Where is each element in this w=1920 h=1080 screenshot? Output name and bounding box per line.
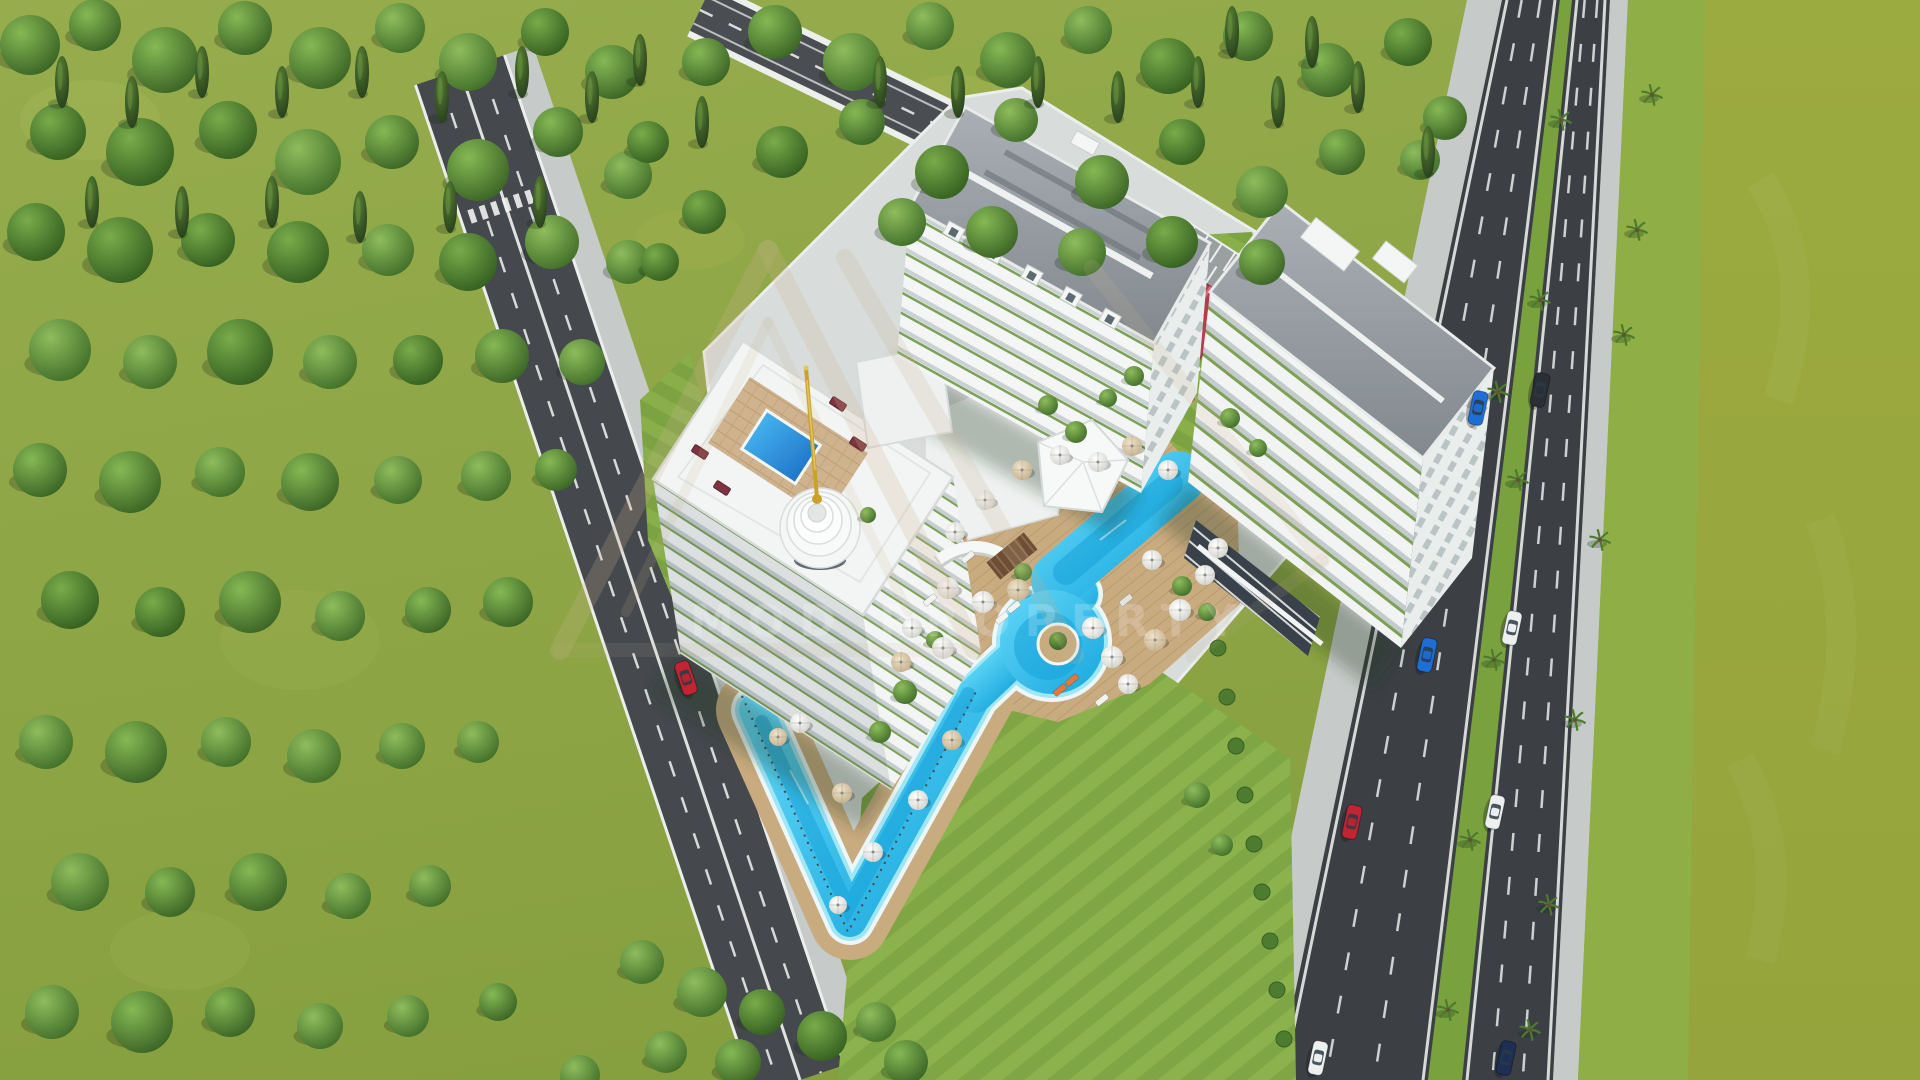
tree-canopy (1065, 421, 1087, 443)
tree-canopy (19, 715, 73, 769)
tree-canopy (111, 991, 173, 1053)
tree-canopy (315, 591, 365, 641)
pine-highlight (588, 77, 593, 105)
umbrella-pole (1059, 454, 1062, 457)
tree-canopy (387, 995, 429, 1037)
pine-highlight (198, 52, 203, 80)
palm-trunk (1559, 118, 1563, 122)
scene-svg (0, 0, 1920, 1080)
tree-canopy (362, 224, 414, 276)
pine-highlight (1308, 22, 1313, 50)
tree-canopy (219, 571, 281, 633)
hedge-bush (1246, 836, 1262, 852)
umbrella-pole (841, 792, 844, 795)
tree-canopy (87, 217, 153, 283)
tree-canopy (1239, 239, 1285, 285)
tree-canopy (69, 0, 121, 51)
hedge-bush (1254, 884, 1270, 900)
tree-canopy (374, 456, 422, 504)
tree-canopy (461, 451, 511, 501)
pine-highlight (954, 72, 959, 100)
pine-highlight (636, 40, 641, 68)
palm-trunk (1547, 903, 1551, 907)
tree-canopy (878, 198, 926, 246)
palm-trunk (1516, 478, 1520, 482)
pine-highlight (178, 192, 183, 220)
tree-canopy (41, 571, 99, 629)
tree-canopy (906, 2, 954, 50)
tree-canopy (1249, 439, 1267, 457)
pine-highlight (1228, 12, 1233, 40)
tree-canopy (145, 867, 195, 917)
tree-canopy (483, 577, 533, 627)
tree-canopy (559, 339, 605, 385)
tree-canopy (893, 680, 917, 704)
tree-canopy (1099, 389, 1117, 407)
umbrella-pole (1167, 469, 1170, 472)
hedge-bush (1237, 787, 1253, 803)
tree-canopy (13, 443, 67, 497)
tree-canopy (535, 449, 577, 491)
tree-canopy (135, 587, 185, 637)
palm-trunk (1635, 228, 1639, 232)
tree-canopy (869, 721, 891, 743)
tree-canopy (797, 1011, 847, 1061)
pine-highlight (1114, 77, 1119, 105)
umbrella-pole (799, 722, 802, 725)
tree-canopy (1172, 576, 1192, 596)
pine-highlight (358, 52, 363, 80)
hedge-bush (1219, 689, 1235, 705)
tree-canopy (682, 38, 730, 86)
tree-canopy (106, 118, 174, 186)
umbrella-pole (1017, 589, 1020, 592)
pine-highlight (268, 182, 273, 210)
tree-canopy (447, 139, 509, 201)
tree-canopy (30, 104, 86, 160)
tree-canopy (1124, 366, 1144, 386)
pine-highlight (1354, 67, 1359, 95)
tree-canopy (966, 206, 1018, 258)
tree-canopy (1146, 216, 1198, 268)
tree-canopy (289, 27, 351, 89)
tree-canopy (29, 319, 91, 381)
tree-canopy (1384, 18, 1432, 66)
umbrella-pole (1021, 469, 1024, 472)
pine-highlight (1034, 62, 1039, 90)
umbrella-pole (954, 531, 957, 534)
tree-canopy (521, 8, 569, 56)
tree-canopy (1038, 395, 1058, 415)
tree-canopy (1064, 6, 1112, 54)
tree-canopy (132, 27, 198, 93)
umbrella-pole (1131, 445, 1134, 448)
tree-canopy (0, 15, 60, 75)
tree-canopy (99, 451, 161, 513)
tree-canopy (105, 721, 167, 783)
pine-highlight (698, 102, 703, 130)
palm-trunk (1538, 298, 1542, 302)
tree-canopy (181, 213, 235, 267)
pine-highlight (536, 182, 541, 210)
umbrella-pole (1127, 683, 1130, 686)
pine-highlight (438, 77, 443, 105)
tree-canopy (218, 1, 272, 55)
pine-highlight (1194, 62, 1199, 90)
umbrella-pole (837, 904, 840, 907)
tree-canopy (51, 853, 109, 911)
tree-canopy (1075, 155, 1129, 209)
tree-canopy (756, 126, 808, 178)
tree-canopy (405, 587, 451, 633)
tree-canopy (201, 717, 251, 767)
tree-canopy (823, 33, 881, 91)
tree-canopy (856, 1002, 896, 1042)
pine-highlight (88, 182, 93, 210)
olive-field (1688, 0, 1920, 1080)
tree-canopy (475, 329, 529, 383)
umbrella-pole (777, 736, 780, 739)
tree-canopy (915, 145, 969, 199)
tree-canopy (980, 32, 1036, 88)
umbrella-pole (900, 661, 903, 664)
palm-trunk (1468, 838, 1472, 842)
tree-canopy (325, 873, 371, 919)
umbrella-pole (1111, 656, 1114, 659)
palm-trunk (1492, 658, 1496, 662)
tree-canopy (645, 1031, 687, 1073)
tree-canopy (748, 5, 802, 59)
tree-canopy (1159, 119, 1205, 165)
tree-canopy (457, 721, 499, 763)
tree-canopy (25, 985, 79, 1039)
pine-highlight (356, 197, 361, 225)
watermark-text: MOD PROPERTY (690, 596, 1250, 647)
tree-canopy (439, 233, 497, 291)
grass-clearing (110, 910, 250, 990)
tree-canopy (199, 101, 257, 159)
tree-canopy (1211, 834, 1233, 856)
tree (0, 15, 60, 75)
pine-highlight (278, 72, 283, 100)
tree-canopy (409, 865, 451, 907)
pine-highlight (1274, 82, 1279, 110)
tree-canopy (375, 3, 425, 53)
tree-canopy (195, 447, 245, 497)
pine-highlight (1424, 132, 1429, 160)
umbrella-pole (1151, 559, 1154, 562)
umbrella-pole (917, 799, 920, 802)
pine-highlight (446, 187, 451, 215)
tree-canopy (1319, 129, 1365, 175)
tree-canopy (1236, 166, 1288, 218)
palm-trunk (1650, 93, 1654, 97)
hedge-bush (1228, 738, 1244, 754)
tree-canopy (297, 1003, 343, 1049)
tree-canopy (123, 335, 177, 389)
palm-trunk (1446, 1008, 1450, 1012)
pine-highlight (518, 52, 523, 80)
tree-canopy (1184, 782, 1210, 808)
tree-canopy (1140, 38, 1196, 94)
palm-trunk (1622, 333, 1626, 337)
palm-trunk (1496, 390, 1500, 394)
pine-highlight (876, 62, 881, 90)
palm-trunk (1573, 718, 1577, 722)
umbrella-pole (872, 851, 875, 854)
tree-canopy (479, 983, 517, 1021)
tree-canopy (287, 729, 341, 783)
palm-trunk (1598, 538, 1602, 542)
palm-trunk (1528, 1028, 1532, 1032)
umbrella-pole (951, 739, 954, 742)
tree-canopy (207, 319, 273, 385)
tree-canopy (533, 107, 583, 157)
tree-canopy (281, 453, 339, 511)
tree-canopy (229, 853, 287, 911)
pine-highlight (58, 62, 63, 90)
tree-canopy (303, 335, 357, 389)
tree-canopy (627, 121, 669, 163)
tree-canopy (393, 335, 443, 385)
hedge-bush (1276, 1031, 1292, 1047)
tree-canopy (365, 115, 419, 169)
pine-highlight (128, 82, 133, 110)
umbrella-pole (1204, 574, 1207, 577)
hedge-bush (1262, 933, 1278, 949)
tree-canopy (739, 989, 785, 1035)
hedge-bush (1269, 982, 1285, 998)
tree-canopy (267, 221, 329, 283)
tree-canopy (7, 203, 65, 261)
tree-canopy (379, 723, 425, 769)
aerial-render: MOD PROPERTY (0, 0, 1920, 1080)
umbrella-pole (1097, 461, 1100, 464)
tree-canopy (275, 129, 341, 195)
umbrella-pole (1217, 547, 1220, 550)
tree-canopy (677, 967, 727, 1017)
tree-canopy (682, 190, 726, 234)
tree-canopy (205, 987, 255, 1037)
tree-canopy (620, 940, 664, 984)
tree-canopy (641, 243, 679, 281)
